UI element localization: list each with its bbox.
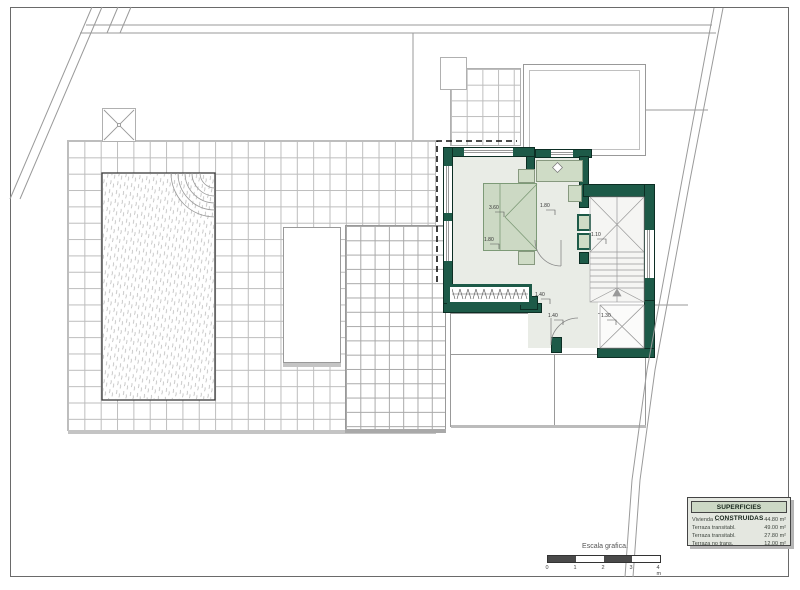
nightstand — [518, 251, 535, 265]
legend-title: SUPERFICIES CONSTRUIDAS — [691, 501, 787, 513]
window — [464, 148, 513, 156]
dimension-label: 1.10 — [591, 233, 601, 238]
dimension-label: 1.40 — [548, 314, 558, 319]
wall-segment — [597, 348, 655, 358]
scale-segment — [576, 556, 604, 562]
scale-segment — [632, 556, 660, 562]
terrace-white-area — [283, 227, 341, 363]
bathroom-counter — [536, 160, 583, 182]
roof-access-marker — [102, 108, 136, 142]
scale-tick: 2 — [601, 565, 604, 571]
legend-box: SUPERFICIES CONSTRUIDAS Vivienda .......… — [687, 497, 791, 546]
legend-row-value: 49.00 m² — [764, 524, 786, 532]
dimension-label: 1.80 — [540, 204, 550, 209]
scale-segment — [604, 556, 632, 562]
dimension-label: 3.60 — [489, 206, 499, 211]
scale-tick: 0 — [545, 565, 548, 571]
terrace-white-shadow — [283, 363, 341, 367]
scale-label: Escala grafica. — [540, 543, 670, 550]
floor-plan-canvas: 3.60 1.80 1.80 1.10 1.40 1.40 1.30 SUPER… — [0, 0, 800, 590]
terrace-secondary-shadow — [345, 429, 446, 433]
utility-unit — [577, 214, 591, 231]
closet — [447, 284, 532, 305]
window — [645, 230, 654, 278]
legend-row: Terraza transitabl. 49.00 m² — [692, 524, 788, 532]
terrace-tile-grid-secondary — [345, 225, 446, 431]
window — [444, 221, 452, 261]
scale-segment — [548, 556, 576, 562]
legend-row-name: Terraza transitabl. — [692, 533, 736, 539]
terrace-notch — [440, 57, 467, 90]
dimension-label: 1.40 — [535, 293, 545, 298]
graphic-scale: Escala grafica. 0 1 2 3 4 m — [540, 543, 670, 577]
utility-unit — [577, 233, 591, 250]
legend-row: Terraza transitabl. 27.80 m² — [692, 532, 788, 540]
bathroom-cabinet — [568, 185, 582, 202]
legend-row: Vivienda ............ 44.80 m² — [692, 516, 788, 524]
legend-row-name: Terraza transitabl. — [692, 525, 736, 531]
legend-row-value: 12.00 m² — [764, 540, 786, 548]
dimension-label: 1.80 — [484, 238, 494, 243]
legend-row-value: 44.80 m² — [764, 516, 786, 524]
wall-segment — [579, 252, 589, 264]
upper-terrace-inner-line — [529, 70, 640, 150]
dimension-label: 1.30 — [601, 314, 611, 319]
lower-terrace-shadow — [451, 425, 646, 428]
upper-terrace — [523, 64, 646, 156]
scale-tick: 3 — [629, 565, 632, 571]
wall-segment — [551, 337, 562, 353]
nightstand — [518, 169, 535, 183]
scale-tick: 4 m — [657, 565, 666, 577]
stairwell-floor — [590, 197, 644, 302]
skylight-floor — [600, 305, 644, 348]
legend-row-name: Terraza no trans. — [692, 541, 733, 547]
lower-terrace-divider-v — [554, 354, 555, 426]
window — [551, 150, 573, 157]
legend-row: Terraza no trans. 12.00 m² — [692, 540, 788, 548]
legend-row-value: 27.80 m² — [764, 532, 786, 540]
legend-row-name: Vivienda ............ — [692, 517, 733, 523]
scale-tick: 1 — [573, 565, 576, 571]
scale-bar — [547, 555, 661, 563]
window — [444, 166, 452, 213]
